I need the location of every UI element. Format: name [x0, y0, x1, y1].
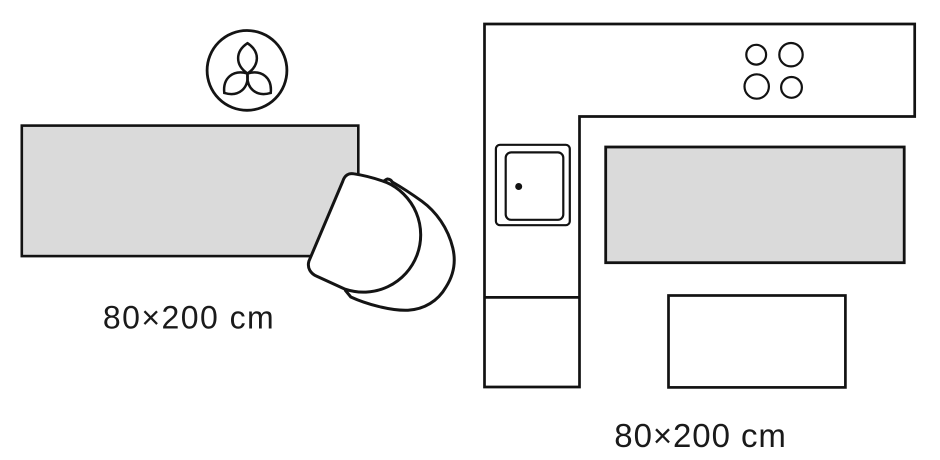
- svg-text:80×200 cm: 80×200 cm: [103, 300, 275, 336]
- svg-text:80×200 cm: 80×200 cm: [614, 417, 786, 454]
